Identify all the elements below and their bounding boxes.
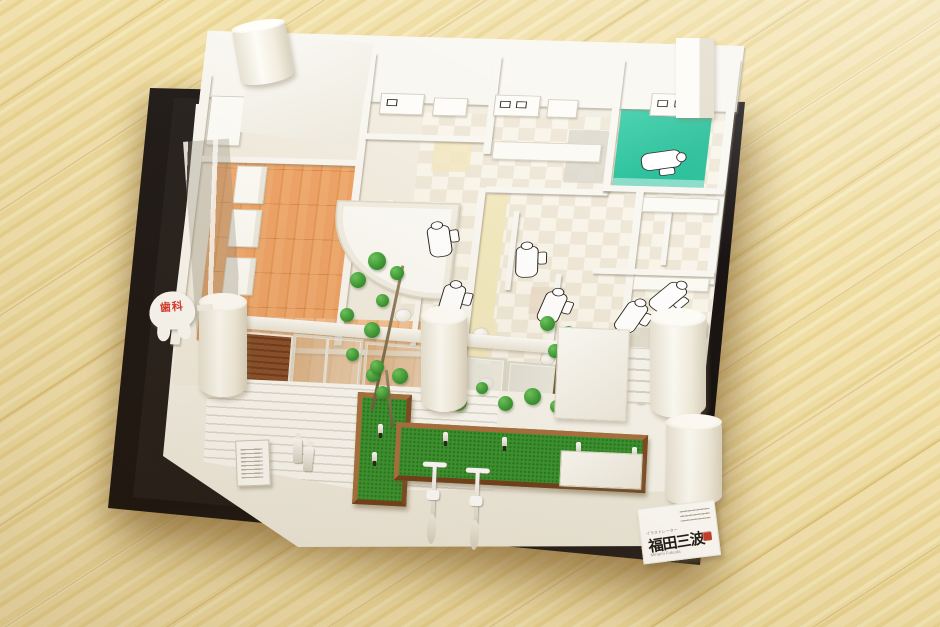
column-cylinder	[421, 308, 467, 412]
equipment-icon	[500, 101, 511, 108]
foliage	[498, 396, 513, 411]
photo-scene: 歯科 イラストレーター 福田三波 Minami Fukuda	[0, 0, 940, 627]
bicycle-wheel	[426, 514, 436, 544]
foliage	[376, 386, 389, 399]
foliage	[350, 272, 366, 288]
cabinet	[432, 97, 468, 116]
monitor-icon	[657, 100, 668, 107]
tooth-shaped-sign: 歯科	[148, 289, 209, 352]
column-cylinder	[666, 416, 722, 506]
tile-patch	[431, 141, 473, 172]
tree-in-planter	[362, 360, 422, 430]
equipment-icon	[516, 101, 527, 108]
garden-light	[443, 432, 448, 442]
column-cylinder	[231, 18, 295, 88]
foliage	[390, 266, 404, 280]
cabinet	[546, 99, 579, 118]
foliage	[340, 308, 354, 322]
foliage	[392, 368, 408, 384]
foliage	[346, 348, 359, 361]
dental-chair	[426, 224, 453, 258]
side-counter	[642, 197, 720, 214]
foliage	[376, 294, 389, 307]
column-square	[676, 38, 714, 118]
clinic-info-signboard	[235, 439, 271, 486]
column-cylinder	[650, 310, 706, 418]
waiting-bench	[233, 166, 268, 204]
red-seal-stamp	[702, 531, 712, 541]
garden-light	[378, 424, 383, 434]
white-block	[554, 326, 630, 421]
credit-text-lines	[679, 506, 710, 522]
bicycle	[456, 467, 496, 556]
cabinet	[493, 95, 541, 117]
white-block	[559, 450, 642, 490]
foliage	[370, 360, 384, 374]
bicycle-seat	[426, 490, 439, 501]
equipment-icon	[386, 99, 397, 106]
foliage	[476, 382, 488, 394]
garden-light	[372, 452, 377, 462]
scale-figure	[293, 438, 302, 463]
foliage	[368, 252, 386, 270]
foliage	[364, 322, 380, 338]
garden-light	[502, 437, 507, 447]
bicycle-wheel	[469, 520, 479, 550]
signboard-text-lines	[240, 448, 263, 479]
dental-chair	[515, 246, 539, 278]
sterilization-counter	[492, 141, 602, 162]
maker-credit-card: イラストレーター 福田三波 Minami Fukuda	[637, 499, 721, 564]
foliage	[540, 316, 555, 331]
cabinet	[379, 93, 425, 115]
bicycle-seat	[469, 496, 482, 507]
bicycle	[413, 461, 453, 550]
